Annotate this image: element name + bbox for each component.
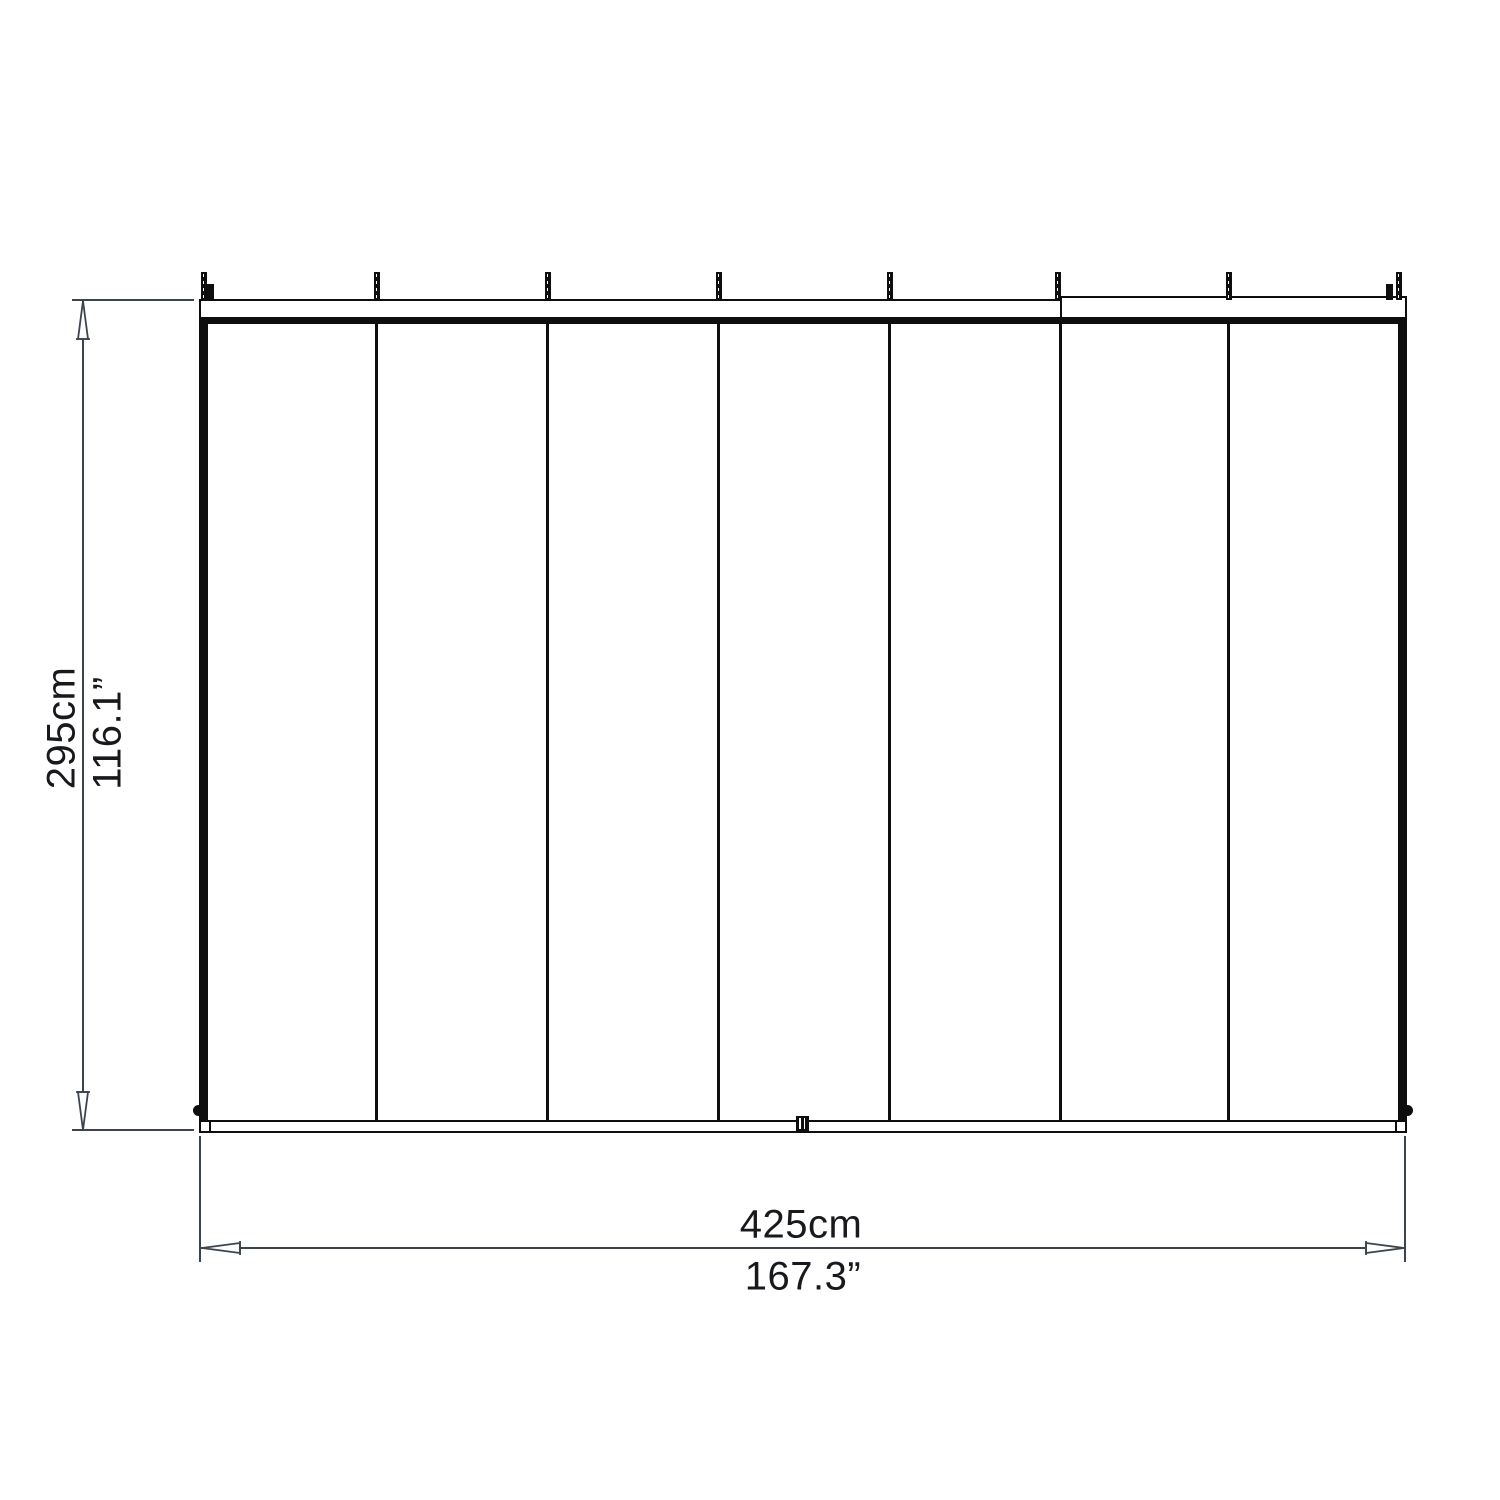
height-label-metric: 295cm	[40, 667, 85, 790]
clip-slit	[799, 1118, 801, 1129]
panel-divider	[717, 324, 720, 1120]
arrow-up-icon	[74, 300, 92, 342]
frame-right-edge	[1398, 321, 1407, 1122]
arrow-right-icon	[1363, 1239, 1405, 1257]
panel-field-top-edge	[199, 319, 1407, 324]
mounting-peg	[1396, 272, 1402, 300]
mounting-peg	[716, 272, 722, 300]
frame-left-edge	[199, 321, 208, 1122]
arrow-down-icon	[74, 1089, 92, 1131]
clip-slit	[804, 1118, 806, 1129]
mounting-peg-nub-right	[1386, 284, 1393, 300]
top-rail-left-segment	[199, 299, 1065, 319]
arrow-left-icon	[201, 1239, 243, 1257]
width-label-metric: 425cm	[740, 1203, 863, 1248]
mounting-peg	[1226, 272, 1232, 300]
top-rail-right-segment	[1060, 296, 1407, 319]
panel-divider	[1059, 324, 1062, 1120]
mounting-peg-nub-left	[207, 284, 214, 300]
panel-divider	[375, 324, 378, 1120]
panel-divider	[1227, 324, 1230, 1120]
bottom-rail-cap-right	[1395, 1120, 1407, 1133]
bottom-rail-center-clip	[796, 1116, 809, 1131]
dimension-diagram: 295cm 116.1” 425cm 167.3”	[0, 0, 1500, 1500]
mounting-peg	[887, 272, 893, 300]
height-label-imperial: 116.1”	[86, 676, 131, 789]
bottom-rail-cap-left	[199, 1120, 211, 1133]
mounting-peg	[374, 272, 380, 300]
panel-divider	[546, 324, 549, 1120]
width-label-imperial: 167.3”	[745, 1255, 861, 1300]
mounting-peg	[545, 272, 551, 300]
mounting-peg	[1055, 272, 1061, 300]
panel-divider	[888, 324, 891, 1120]
